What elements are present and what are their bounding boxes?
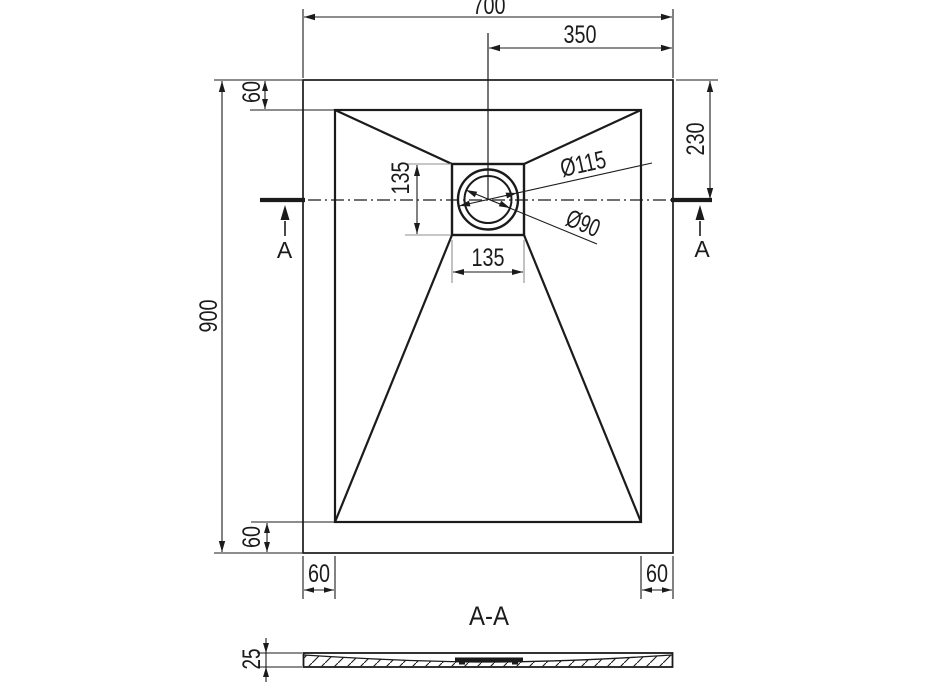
dim-label-edge-right: 60 <box>646 560 668 588</box>
dim-label-drain-width: 135 <box>472 244 505 272</box>
slope-diagonal-bottom-left <box>335 235 452 522</box>
dim-label-edge-left: 60 <box>308 560 330 588</box>
dim-label-half-width: 350 <box>564 21 597 49</box>
slope-diagonal-bottom-right <box>524 235 641 522</box>
dim-label-drain-offset-top: 230 <box>682 123 710 156</box>
dim-label-width: 700 <box>473 0 506 20</box>
section-drain-foot-left <box>459 662 465 665</box>
drawing-svg: 700 350 900 230 60 60 60 60 135 135 Ø115… <box>0 0 928 686</box>
dimension-lines <box>222 17 710 590</box>
dim-label-drain-height: 135 <box>387 162 415 195</box>
section-marker-a-left: A <box>277 237 293 263</box>
section-drain-foot-right <box>512 662 518 665</box>
dim-label-drain-inner-diameter: Ø90 <box>562 204 604 243</box>
slope-diagonal-top-left <box>335 110 452 164</box>
section-marker-a-right: A <box>694 236 710 262</box>
dimension-arrowheads <box>219 14 713 677</box>
labels: 700 350 900 230 60 60 60 60 135 135 Ø115… <box>195 0 710 670</box>
section-title: A-A <box>469 601 509 631</box>
section-drain-cap <box>455 658 523 662</box>
dim-label-edge-bottom: 60 <box>238 526 266 548</box>
shower-tray-technical-drawing: 700 350 900 230 60 60 60 60 135 135 Ø115… <box>0 0 928 686</box>
plan-view <box>214 9 718 599</box>
section-view <box>257 638 673 682</box>
dim-label-edge-top: 60 <box>238 81 266 103</box>
dim-label-thickness: 25 <box>238 649 266 670</box>
dim-label-height: 900 <box>195 300 223 333</box>
extension-lines <box>214 9 718 599</box>
dim-label-drain-outer-diameter: Ø115 <box>558 146 609 183</box>
